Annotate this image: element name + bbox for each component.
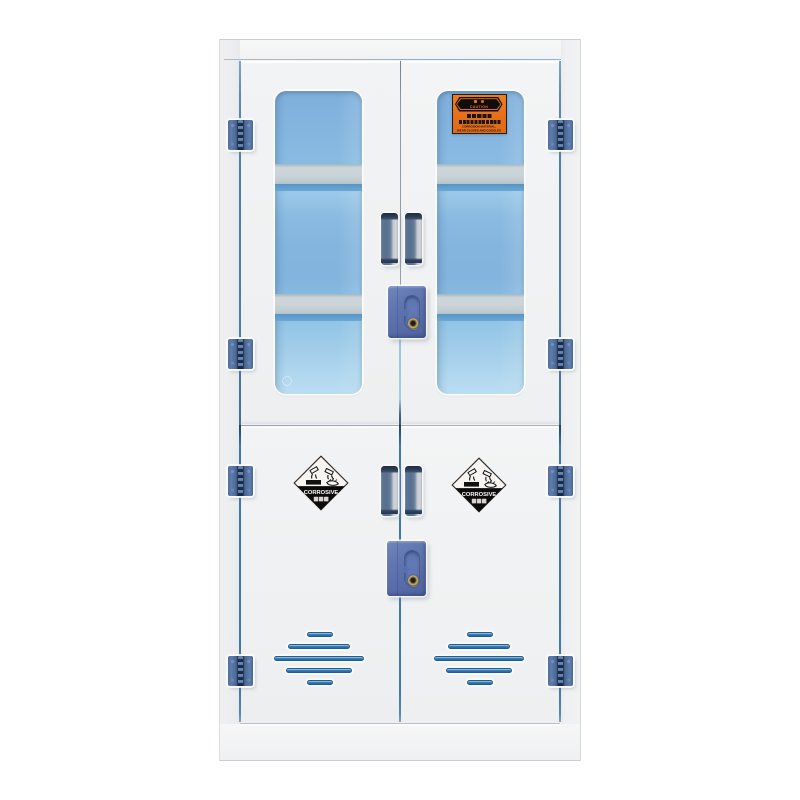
- svg-text:CORROSIVE: CORROSIVE: [461, 491, 496, 497]
- svg-text:CORROSIVE: CORROSIVE: [303, 490, 338, 496]
